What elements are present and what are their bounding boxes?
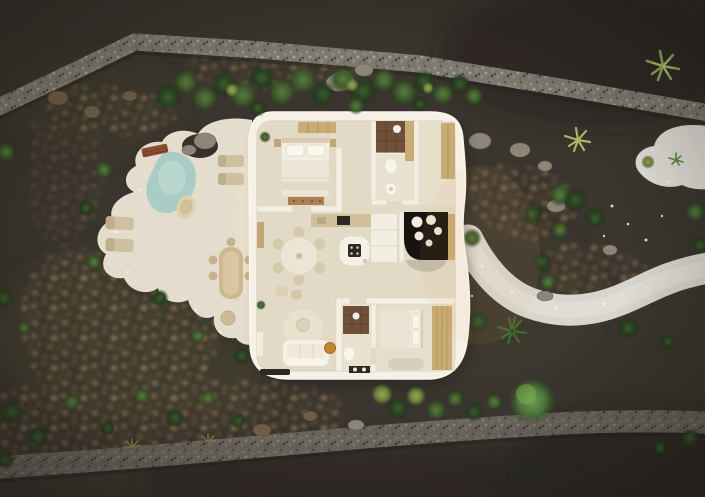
villa-aerial-render: [0, 0, 705, 497]
vignette: [0, 0, 705, 497]
scene-canvas: [0, 0, 705, 497]
